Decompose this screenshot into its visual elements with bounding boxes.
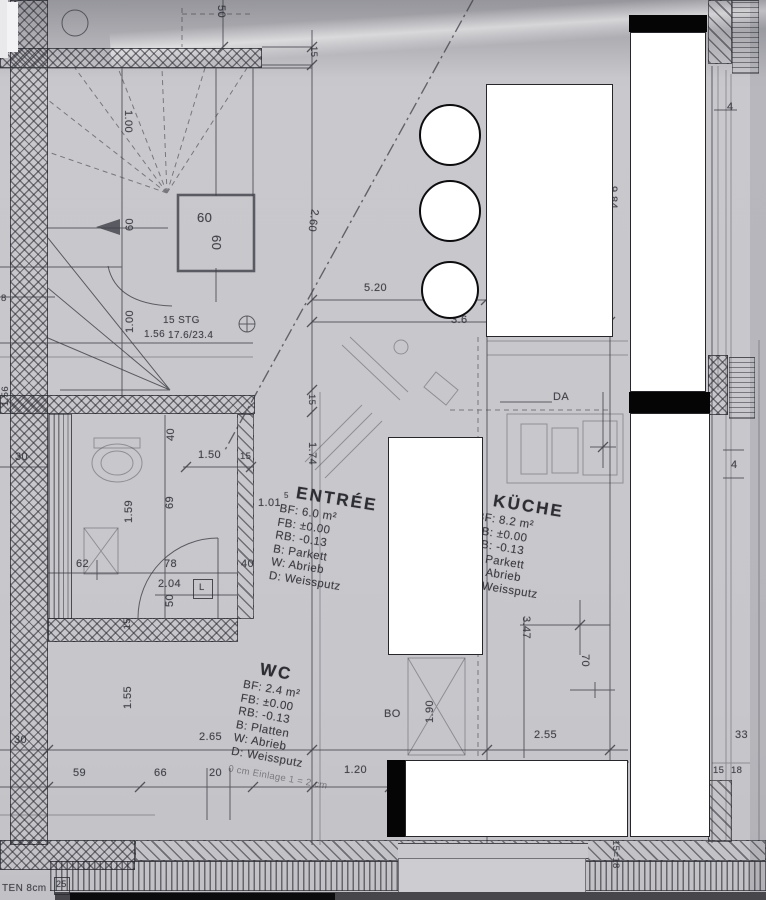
- redaction-box-middle: [388, 437, 483, 655]
- dim-wc-40-left: 40: [165, 428, 177, 441]
- dim-stair-100-upper: 1.00: [122, 110, 134, 133]
- stair-note-156: 1.56: [144, 329, 165, 340]
- edge-note-25: 25: [56, 879, 67, 889]
- dim-wc-30: 30: [15, 451, 28, 463]
- dim-mid-174: 1.74: [306, 442, 318, 465]
- room-label-entree: ENTRÉE BF: 6.0 m² FB: ±0.00 RB: -0.13 B:…: [268, 481, 379, 598]
- dim-kit-70: 70: [579, 654, 591, 667]
- dim-wc-204: 2.04: [158, 578, 181, 590]
- dim-wc-62: 62: [76, 558, 89, 570]
- dim-stair-box-60v: 60: [209, 235, 224, 250]
- dim-right-4-mid: 4: [731, 459, 738, 471]
- redaction-black-bar-mid: [629, 392, 710, 413]
- dim-wc-78: 78: [164, 558, 177, 570]
- stair-note-rise-run: 17.6/23.4: [168, 330, 213, 341]
- redaction-circle-1: [419, 104, 481, 166]
- dim-wc-15-right: 15: [240, 451, 251, 462]
- dim-low-265: 2.65: [199, 731, 222, 743]
- dim-kit-255: 2.55: [534, 729, 557, 741]
- dim-right-18: 18: [731, 765, 742, 776]
- redaction-circle-2: [419, 180, 481, 242]
- dim-left-8: 8: [1, 293, 7, 304]
- dim-right-15: 15: [713, 765, 724, 776]
- redaction-circle-3: [421, 261, 479, 319]
- redaction-black-bar-top: [629, 15, 707, 32]
- dim-wc-40-right: 40: [241, 558, 254, 570]
- dim-ent-101: 1.01: [258, 497, 281, 509]
- redaction-black-bar-bottom: [387, 760, 405, 837]
- dim-stair-100-lower: 1.00: [124, 310, 136, 333]
- dim-bottom-1518: 15=18: [610, 840, 621, 869]
- floor-plan-scan: 50 15 8 1.56 1.00 1.00 60 60 60 15 STG 1…: [0, 0, 766, 900]
- dim-left-156: 1.56: [0, 386, 11, 406]
- dim-wc-69: 69: [164, 496, 176, 509]
- dim-top-15: 15: [308, 46, 319, 57]
- redaction-box-upper: [486, 84, 613, 337]
- stair-note-steps: 15 STG: [163, 315, 200, 326]
- dim-stair-box-60h: 60: [197, 210, 212, 225]
- redaction-box-bottom: [405, 760, 628, 837]
- annotation-bo: BO: [384, 708, 401, 720]
- dim-wc-159: 1.59: [123, 500, 135, 523]
- annotation-da: DA: [553, 391, 569, 403]
- dim-low-155: 1.55: [122, 686, 134, 709]
- dim-top-50: 50: [215, 5, 227, 18]
- dim-low-59: 59: [73, 767, 86, 779]
- redaction-box-right-lower: [630, 413, 710, 837]
- dim-kit-347: 3.47: [520, 616, 532, 639]
- dim-stair-width-60: 60: [124, 218, 136, 231]
- dim-mid-15: 15: [306, 394, 317, 405]
- dim-low-20: 20: [209, 767, 222, 779]
- dim-wc-15-bottom: 15: [122, 618, 133, 629]
- dim-kit-190: 1.90: [424, 700, 436, 723]
- dim-wc-150: 1.50: [198, 449, 221, 461]
- dim-low-66: 66: [154, 767, 167, 779]
- dim-520: 5.20: [364, 282, 387, 294]
- dim-low-120: 1.20: [344, 764, 367, 776]
- edge-note-text: TEN 8cm: [2, 883, 46, 894]
- dim-low-30: 30: [14, 734, 27, 746]
- door-symbol-l: L: [199, 582, 205, 593]
- dim-right-33: 33: [735, 729, 748, 741]
- redaction-box-right-upper: [630, 32, 706, 392]
- dim-right-4-top: 4: [727, 101, 734, 113]
- dim-wc-50: 50: [164, 594, 176, 607]
- room-label-wc: WC BF: 2.4 m² FB: ±0.00 RB: -0.13 B: Pla…: [227, 657, 347, 791]
